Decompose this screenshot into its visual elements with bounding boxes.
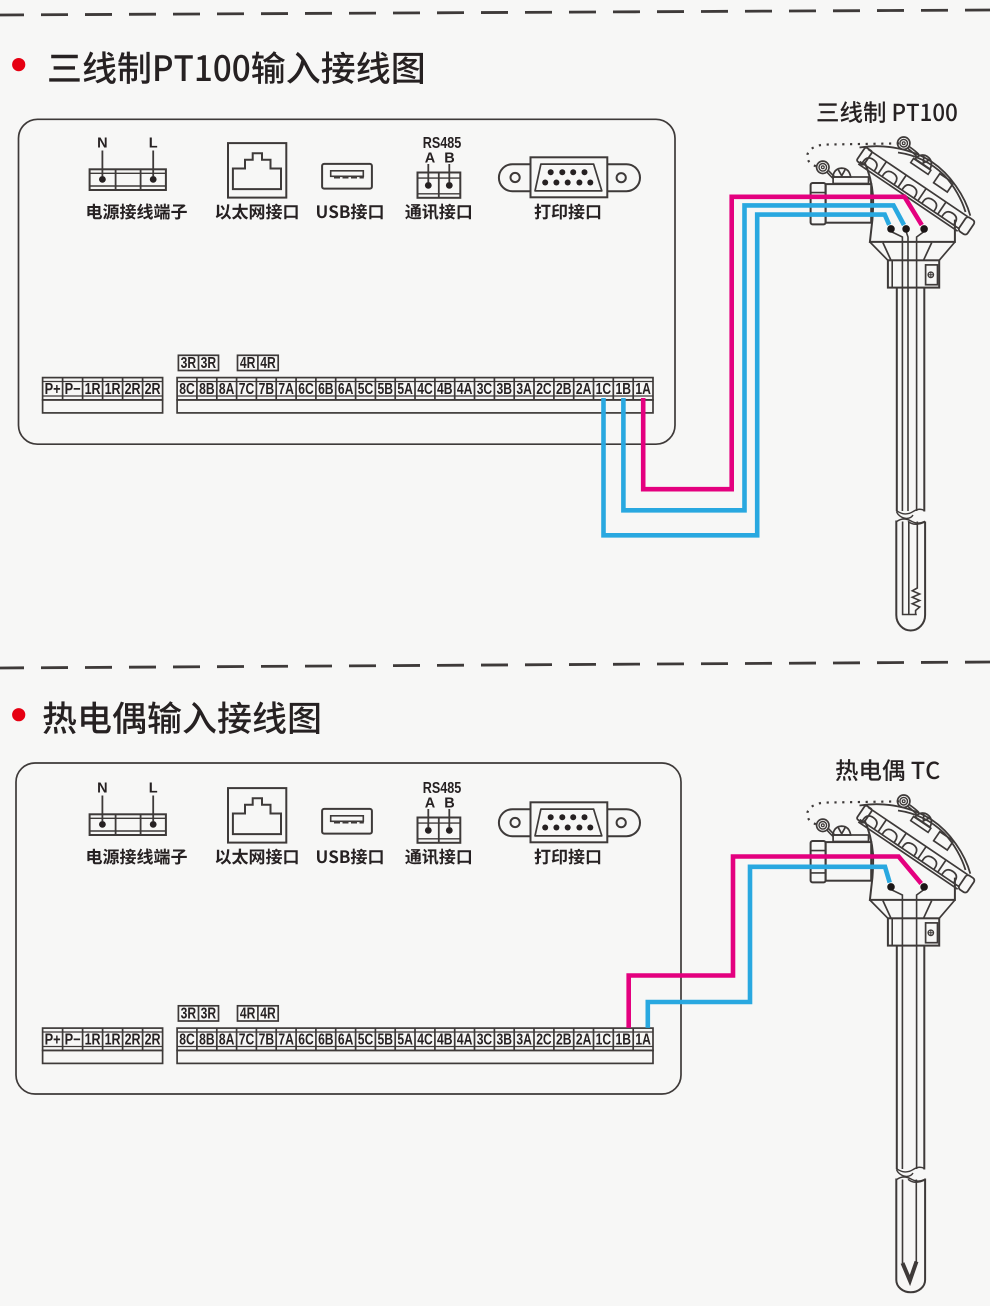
- svg-text:2A: 2A: [576, 1032, 592, 1049]
- svg-text:1B: 1B: [616, 1032, 632, 1049]
- svg-text:A: A: [425, 796, 436, 812]
- svg-text:P+: P+: [45, 381, 61, 398]
- svg-text:4R: 4R: [260, 355, 276, 372]
- svg-text:3R: 3R: [181, 355, 197, 372]
- svg-text:6A: 6A: [338, 1032, 354, 1049]
- svg-text:7C: 7C: [239, 1032, 255, 1049]
- svg-text:3R: 3R: [201, 1006, 217, 1023]
- svg-text:1C: 1C: [596, 381, 612, 398]
- svg-text:4R: 4R: [240, 1006, 256, 1023]
- svg-text:1A: 1A: [635, 1032, 651, 1049]
- svg-text:1A: 1A: [635, 381, 651, 398]
- svg-text:8A: 8A: [219, 1032, 235, 1049]
- svg-text:5C: 5C: [358, 381, 374, 398]
- svg-text:1R: 1R: [85, 381, 101, 398]
- svg-text:5B: 5B: [378, 1032, 394, 1049]
- svg-text:5A: 5A: [397, 381, 413, 398]
- svg-text:3A: 3A: [516, 1032, 532, 1049]
- svg-text:4B: 4B: [437, 1032, 453, 1049]
- svg-text:1R: 1R: [105, 1032, 121, 1049]
- svg-text:7B: 7B: [259, 1032, 275, 1049]
- svg-text:4A: 4A: [457, 381, 473, 398]
- svg-text:3B: 3B: [497, 1032, 513, 1049]
- svg-text:2C: 2C: [536, 1032, 552, 1049]
- svg-text:6C: 6C: [298, 381, 314, 398]
- svg-text:7A: 7A: [278, 1032, 294, 1049]
- svg-text:4C: 4C: [417, 381, 433, 398]
- svg-text:3B: 3B: [497, 381, 513, 398]
- svg-text:4A: 4A: [457, 1032, 473, 1049]
- svg-text:7A: 7A: [278, 381, 294, 398]
- svg-text:4B: 4B: [437, 381, 453, 398]
- svg-text:7B: 7B: [259, 381, 275, 398]
- svg-text:L: L: [149, 781, 158, 797]
- svg-text:3R: 3R: [181, 1006, 197, 1023]
- svg-text:5A: 5A: [397, 1032, 413, 1049]
- svg-text:3A: 3A: [516, 381, 532, 398]
- svg-text:1R: 1R: [105, 381, 121, 398]
- svg-text:P−: P−: [65, 381, 81, 398]
- svg-text:B: B: [444, 151, 454, 167]
- svg-text:2B: 2B: [556, 1032, 572, 1049]
- svg-text:8B: 8B: [199, 1032, 215, 1049]
- svg-text:1B: 1B: [616, 381, 632, 398]
- svg-text:1C: 1C: [596, 1032, 612, 1049]
- svg-text:8B: 8B: [199, 381, 215, 398]
- svg-text:1R: 1R: [85, 1032, 101, 1049]
- svg-text:P+: P+: [45, 1032, 61, 1049]
- svg-text:2R: 2R: [125, 381, 141, 398]
- svg-text:L: L: [149, 136, 158, 152]
- svg-text:5B: 5B: [378, 381, 394, 398]
- svg-text:2R: 2R: [145, 1032, 161, 1049]
- svg-text:2C: 2C: [536, 381, 552, 398]
- svg-text:6B: 6B: [318, 381, 334, 398]
- svg-text:2R: 2R: [125, 1032, 141, 1049]
- svg-text:6A: 6A: [338, 381, 354, 398]
- svg-text:4R: 4R: [240, 355, 256, 372]
- svg-text:B: B: [444, 796, 454, 812]
- svg-text:8C: 8C: [179, 381, 195, 398]
- svg-text:6B: 6B: [318, 1032, 334, 1049]
- svg-text:3R: 3R: [201, 355, 217, 372]
- svg-text:4C: 4C: [417, 1032, 433, 1049]
- svg-text:N: N: [97, 136, 107, 152]
- svg-text:RS485: RS485: [423, 780, 462, 797]
- svg-text:4R: 4R: [260, 1006, 276, 1023]
- svg-text:3C: 3C: [477, 1032, 493, 1049]
- svg-text:5C: 5C: [358, 1032, 374, 1049]
- svg-text:2A: 2A: [576, 381, 592, 398]
- svg-text:A: A: [425, 151, 436, 167]
- svg-text:6C: 6C: [298, 1032, 314, 1049]
- svg-text:2B: 2B: [556, 381, 572, 398]
- svg-text:N: N: [97, 781, 107, 797]
- svg-text:8C: 8C: [179, 1032, 195, 1049]
- svg-text:P−: P−: [65, 1032, 81, 1049]
- svg-text:RS485: RS485: [423, 135, 462, 152]
- svg-text:3C: 3C: [477, 381, 493, 398]
- svg-text:7C: 7C: [239, 381, 255, 398]
- svg-text:8A: 8A: [219, 381, 235, 398]
- svg-text:2R: 2R: [145, 381, 161, 398]
